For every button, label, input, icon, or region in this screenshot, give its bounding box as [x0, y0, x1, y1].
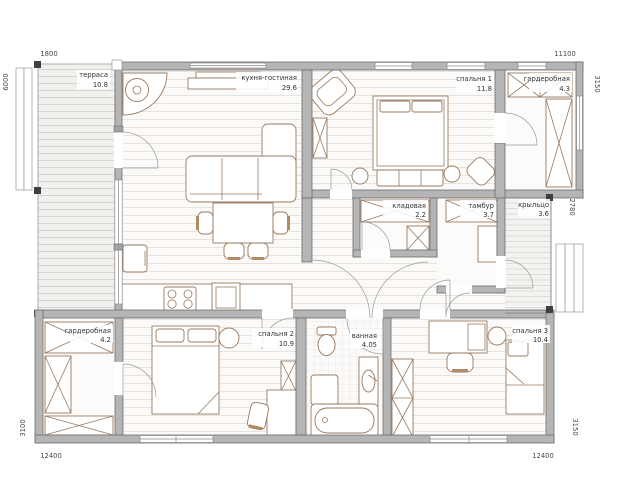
bed-3 [506, 340, 544, 414]
label-bedroom3: спальня 3 [512, 327, 548, 335]
fridge [123, 245, 147, 272]
dim-left-upper: 6000 [2, 73, 10, 90]
label-vestibule-area: 3.7 [483, 211, 494, 219]
label-kitchen-living-area: 29.6 [282, 84, 297, 92]
stool-bedroom2 [219, 328, 239, 348]
desk-2 [267, 390, 296, 435]
label-wardrobe-top-area: 4.3 [559, 85, 570, 93]
bathtub [311, 404, 378, 437]
label-kitchen-living: кухня-гостиная [241, 74, 297, 82]
terrace-post [34, 61, 41, 68]
cabinet-bedroom2 [281, 361, 296, 391]
dim-left-lower: 3100 [19, 419, 27, 436]
label-wardrobe-bottom-area: 4.2 [100, 336, 111, 344]
label-bathroom: ванная [352, 332, 377, 340]
bathroom-sink [359, 357, 378, 406]
dining-table [213, 203, 273, 243]
bed-2 [152, 326, 219, 414]
washing-machine [311, 375, 338, 405]
kitchen-counter [122, 283, 292, 312]
dim-top-terrace: 1800 [40, 50, 57, 58]
kitchen-sink [212, 283, 240, 312]
label-wardrobe-top: гардеробная [524, 75, 570, 83]
dim-right-upper: 3150 [593, 75, 601, 92]
label-bedroom1-area: 11.8 [477, 85, 492, 93]
stool-bedroom1 [444, 166, 460, 182]
dim-bottom-right: 12400 [532, 452, 554, 460]
shelf-bedroom1 [313, 118, 327, 158]
label-storage: кладовая [392, 202, 426, 210]
dim-top-main: 11100 [554, 50, 576, 58]
side-table [352, 168, 368, 184]
label-bedroom3-area: 10.4 [533, 336, 548, 344]
label-vestibule: тамбур [468, 202, 494, 210]
label-terrace-area: 10.8 [93, 81, 108, 89]
stool-bedroom3 [488, 327, 506, 345]
bed-1 [373, 96, 448, 170]
floor-plan: терраса 10.8 кухня-гостиная 29.6 спальня… [0, 0, 626, 502]
label-bedroom2: спальня 2 [258, 330, 294, 338]
chair-bedroom3 [447, 353, 473, 372]
dim-right-middle: 2780 [568, 198, 576, 215]
terrace-deck [16, 61, 115, 317]
desk-3 [429, 321, 487, 353]
label-porch-area: 3.6 [538, 210, 549, 218]
toilet [317, 327, 336, 356]
stove [164, 287, 196, 311]
terrace-step [16, 68, 24, 190]
dim-right-lower: 3150 [571, 418, 579, 435]
bed-bench [377, 170, 443, 186]
wardrobe-bedroom3 [392, 359, 413, 437]
label-terrace: терраса [79, 71, 108, 79]
label-porch: крыльцо [518, 201, 549, 209]
dim-bottom-left: 12400 [40, 452, 62, 460]
label-bedroom2-area: 10.9 [279, 340, 294, 348]
label-storage-area: 2.2 [415, 211, 426, 219]
label-wardrobe-bottom: гардеробная [65, 327, 111, 335]
floor-plan-canvas: терраса 10.8 кухня-гостиная 29.6 спальня… [0, 0, 626, 502]
label-bathroom-area: 4.05 [362, 341, 377, 349]
label-bedroom1: спальня 1 [456, 75, 492, 83]
